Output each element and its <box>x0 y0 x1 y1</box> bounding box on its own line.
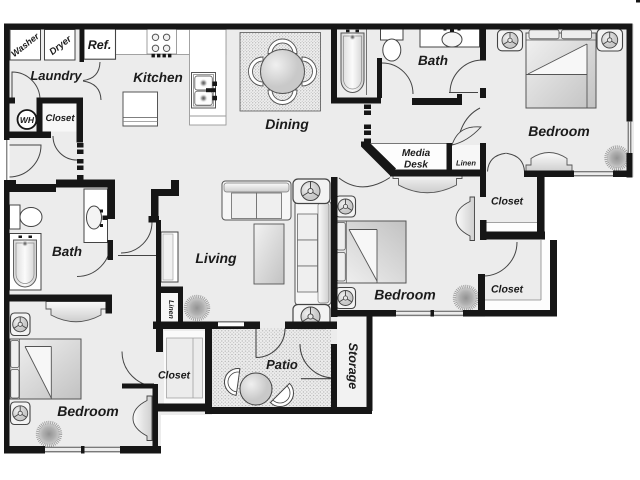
svg-text:Kitchen: Kitchen <box>133 70 183 85</box>
svg-text:Media: Media <box>402 148 431 159</box>
svg-text:Bedroom: Bedroom <box>57 403 118 419</box>
svg-text:Bedroom: Bedroom <box>528 123 589 139</box>
svg-text:Dining: Dining <box>265 116 309 132</box>
svg-text:Closet: Closet <box>45 113 75 124</box>
svg-text:Bath: Bath <box>52 244 82 259</box>
svg-text:WH: WH <box>20 115 35 125</box>
svg-text:Storage: Storage <box>346 343 360 390</box>
svg-text:Closet: Closet <box>491 196 524 208</box>
svg-text:Bath: Bath <box>418 53 448 68</box>
svg-text:Laundry: Laundry <box>30 68 82 83</box>
svg-text:Patio: Patio <box>266 357 298 372</box>
svg-text:Ref.: Ref. <box>88 38 112 52</box>
svg-text:Desk: Desk <box>404 160 428 171</box>
svg-text:Linen: Linen <box>456 159 476 168</box>
svg-text:Bedroom: Bedroom <box>374 287 435 303</box>
svg-text:Closet: Closet <box>158 370 191 382</box>
svg-text:Linen: Linen <box>167 300 175 319</box>
svg-text:Closet: Closet <box>491 284 524 296</box>
svg-text:Living: Living <box>195 250 237 266</box>
